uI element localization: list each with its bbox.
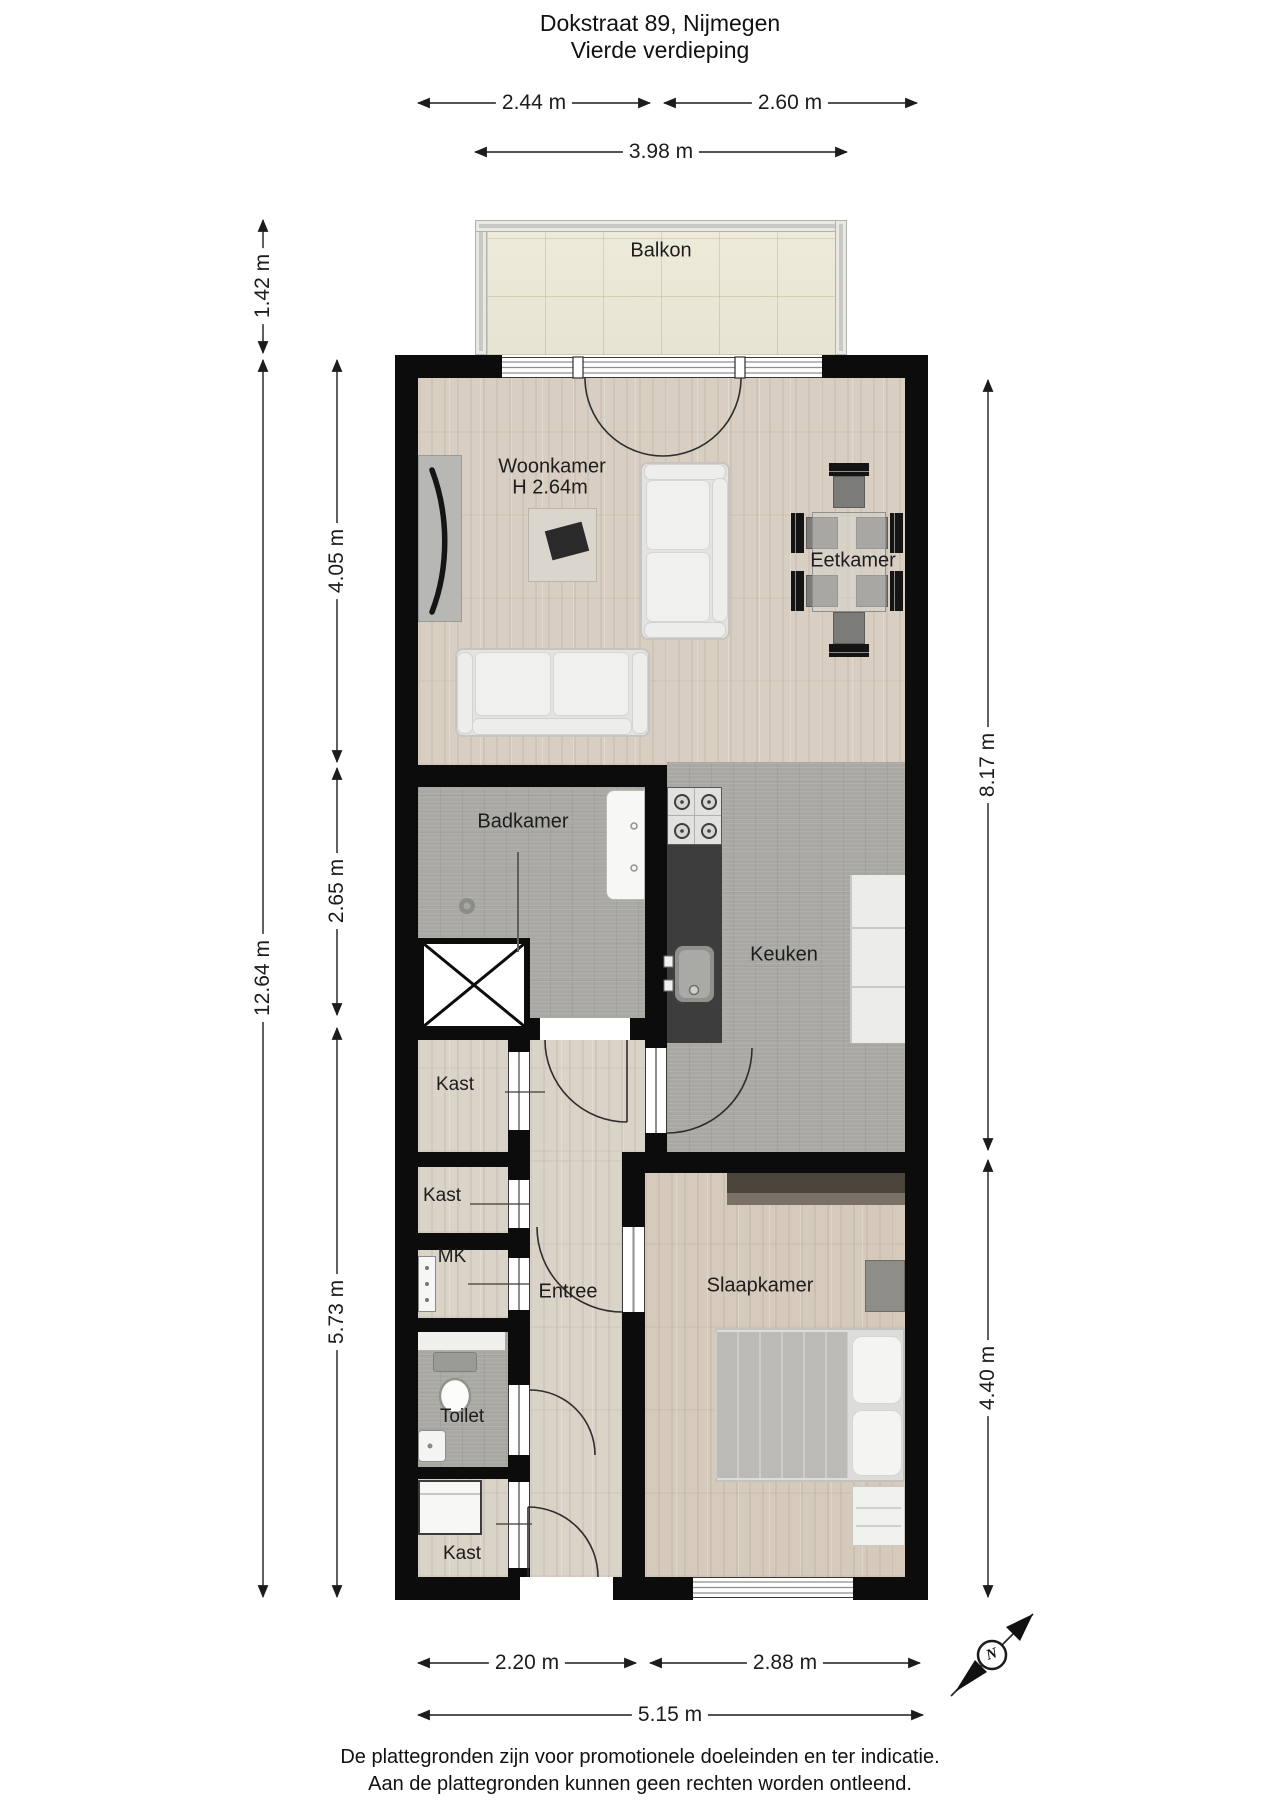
wall-mk-bottom [395, 1318, 530, 1332]
sofa-main-cushion [475, 652, 551, 716]
room-label-eetkamer: Eetkamer [810, 550, 896, 573]
wall-closet-column-a [508, 1040, 530, 1052]
meter-box [418, 1256, 436, 1312]
window-bedroom [693, 1577, 853, 1598]
wall-bathroom-bottom-b [630, 1018, 667, 1040]
dining-chair [833, 612, 865, 644]
dresser [865, 1260, 905, 1312]
wall-toilet-bottom [395, 1467, 530, 1479]
nightstand [852, 1486, 905, 1546]
dining-chair-back [829, 463, 869, 476]
stove [667, 787, 722, 845]
wall-left [395, 355, 418, 1600]
toilet-tank [433, 1352, 477, 1372]
disclaimer: De plattegronden zijn voor promotionele … [0, 1744, 1280, 1798]
floor-hallway-upper [530, 1040, 645, 1152]
room-label-slaapkamer: Slaapkamer [707, 1275, 814, 1298]
wall-bedroom-left-a [622, 1173, 645, 1227]
dining-chair-back [890, 571, 903, 611]
closet-top-door [508, 1052, 530, 1130]
room-label-entree: Entree [539, 1281, 598, 1304]
window-balcony [502, 357, 822, 378]
room-label-kast-middle: Kast [423, 1185, 461, 1207]
bedroom-door [622, 1227, 645, 1312]
dim-left-upper: 4.05 m [325, 523, 349, 599]
bed-pillow [852, 1410, 902, 1476]
dim-bottom-left: 2.20 m [489, 1651, 565, 1675]
room-label-keuken: Keuken [750, 944, 818, 967]
dim-balcony-depth: 1.42 m [251, 248, 275, 324]
sofa-side-armrest-bottom [644, 622, 726, 638]
sofa-main-armrest-left [457, 652, 473, 734]
room-label-kast-bottom: Kast [443, 1543, 481, 1565]
wall-kitchen-divider-upper [645, 765, 667, 1048]
wall-right [905, 355, 928, 1600]
entrance-door-opening [520, 1577, 613, 1598]
closet-middle-door [508, 1180, 530, 1228]
wall-bottom-3 [853, 1577, 928, 1600]
closet-bottom-door [508, 1482, 530, 1568]
bathroom-door-opening [540, 1018, 630, 1040]
dim-left-middle: 2.65 m [325, 853, 349, 929]
ceiling-height-label: H 2.64m [512, 477, 588, 500]
balcony-railing-top [475, 220, 847, 232]
dim-top-right: 2.60 m [752, 91, 828, 115]
kitchen-counter-wall [850, 875, 905, 1043]
toilet-hand-basin [418, 1430, 446, 1462]
mk-door [508, 1258, 530, 1310]
toilet-door [508, 1385, 530, 1455]
sofa-side-cushion [646, 480, 710, 550]
dim-top-total: 3.98 m [623, 140, 699, 164]
room-label-balkon: Balkon [630, 240, 691, 263]
dim-left-lower: 5.73 m [325, 1274, 349, 1350]
disclaimer-line-1: De plattegronden zijn voor promotionele … [0, 1744, 1280, 1771]
wall-bottom-2 [613, 1577, 693, 1600]
dim-left-total: 12.64 m [251, 934, 275, 1022]
room-label-toilet: Toilet [440, 1406, 484, 1428]
dining-chair-back [791, 571, 804, 611]
bathroom-vanity [606, 790, 645, 900]
dining-chair [833, 476, 865, 508]
wall-kitchen-bedroom [622, 1152, 905, 1173]
sofa-side-backrest [712, 478, 728, 622]
plan-floor-name: Vierde verdieping [30, 37, 1280, 64]
floor-plan-canvas: Dokstraat 89, Nijmegen Vierde verdieping [0, 0, 1280, 1810]
wall-bottom-1 [395, 1577, 520, 1600]
shaft-box [418, 938, 530, 1032]
sofa-side-cushion [646, 552, 710, 622]
floor-closet-top [418, 1040, 508, 1152]
bed-pillow [852, 1336, 902, 1404]
dining-chair-back [829, 644, 869, 657]
room-label-mk: MK [438, 1246, 467, 1268]
plan-title-block: Dokstraat 89, Nijmegen Vierde verdieping [30, 10, 1280, 64]
sofa-main-cushion [553, 652, 629, 716]
wall-closet1-bottom [395, 1152, 530, 1167]
sofa-main-backrest [472, 718, 632, 735]
plan-address: Dokstraat 89, Nijmegen [30, 10, 1280, 37]
kitchen-sink-basin [679, 950, 710, 998]
wall-bedroom-left-b [622, 1312, 645, 1577]
dining-chair-back [791, 513, 804, 553]
washing-machine [418, 1480, 482, 1535]
disclaimer-line-2: Aan de plattegronden kunnen geen rechten… [0, 1771, 1280, 1798]
tv-cabinet [418, 455, 462, 622]
sofa-side-armrest-top [644, 464, 726, 480]
dining-chair-back [890, 513, 903, 553]
bed-blanket [715, 1332, 848, 1478]
kitchen-door [645, 1048, 667, 1133]
dim-bottom-right: 2.88 m [747, 1651, 823, 1675]
balcony-railing-right [835, 220, 847, 355]
room-label-kast-top: Kast [436, 1074, 474, 1096]
compass-north-label: N [984, 1645, 1000, 1665]
wall-closet-column-f [508, 1568, 530, 1577]
balcony-railing-left [475, 220, 487, 355]
floor-hallway [530, 1152, 622, 1577]
room-label-badkamer: Badkamer [477, 811, 568, 834]
dim-bottom-total: 5.15 m [632, 1703, 708, 1727]
toilet-shelf [418, 1332, 505, 1350]
dim-top-left: 2.44 m [496, 91, 572, 115]
wall-bathroom-top [418, 765, 667, 787]
room-label-woonkamer: Woonkamer [498, 456, 605, 479]
sofa-main-armrest-right [632, 652, 648, 734]
dim-right-lower: 4.40 m [976, 1340, 1000, 1416]
dim-right-upper: 8.17 m [976, 727, 1000, 803]
wardrobe-front [727, 1193, 905, 1205]
